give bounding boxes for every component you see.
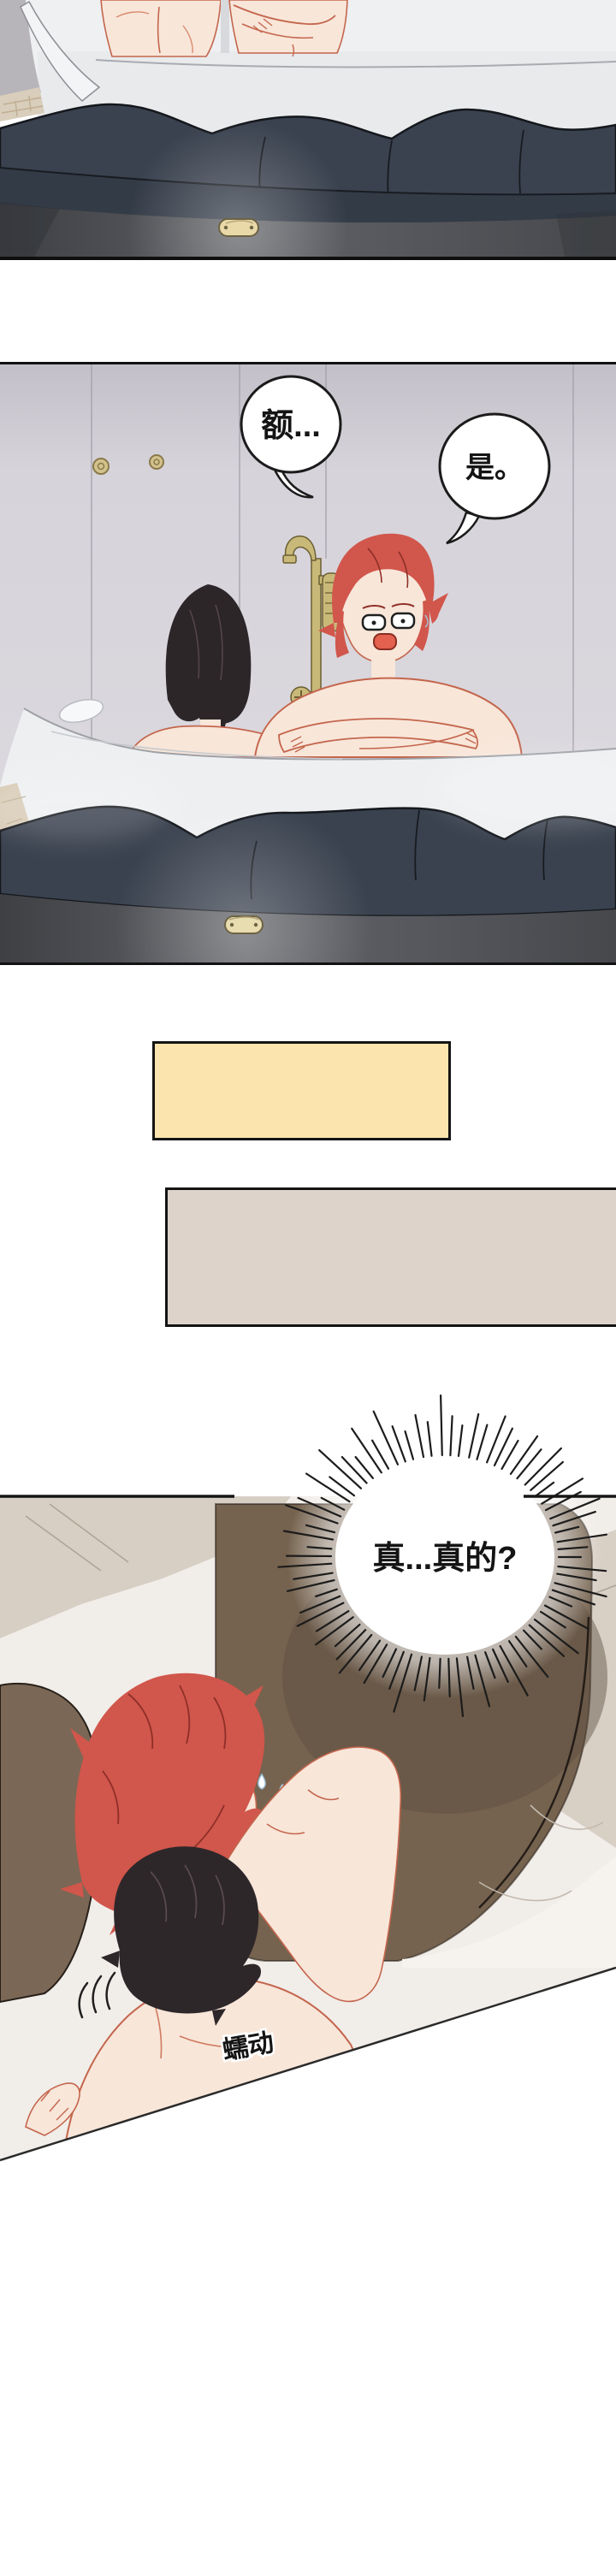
panel2-top-border: [0, 362, 616, 364]
panel2-bottom-border: [0, 962, 616, 965]
panel1-bottom-border: [0, 257, 616, 260]
panel-bed-scene: 蠕动 真...真的?: [0, 1386, 616, 2164]
panel-bathtub-dialogue: 额... 是。: [0, 362, 616, 965]
black-hair: [114, 1846, 261, 2013]
torso-gap-shadow: [221, 0, 229, 53]
comic-page: 额... 是。: [0, 0, 616, 2576]
panel-bathtub-dialogue-art: 额... 是。: [0, 362, 616, 965]
beige-censor-box: [165, 1187, 616, 1327]
drain-fixture: [225, 916, 263, 933]
torso-right-crossed-arms: [229, 0, 347, 56]
drain-fixture: [219, 219, 258, 236]
panel-tub-closeup: [0, 0, 616, 260]
panel-tub-closeup-art: [0, 0, 616, 260]
open-mouth: [374, 634, 396, 649]
bubble-uh-text: 额...: [261, 408, 321, 444]
panel-bed-scene-art: 蠕动 真...真的?: [0, 1386, 616, 2164]
bubble-yes-text: 是。: [465, 452, 524, 484]
torso-left: [101, 0, 221, 56]
yellow-censor-box: [152, 1041, 451, 1140]
bubble-really-text: 真...真的?: [373, 1541, 518, 1577]
